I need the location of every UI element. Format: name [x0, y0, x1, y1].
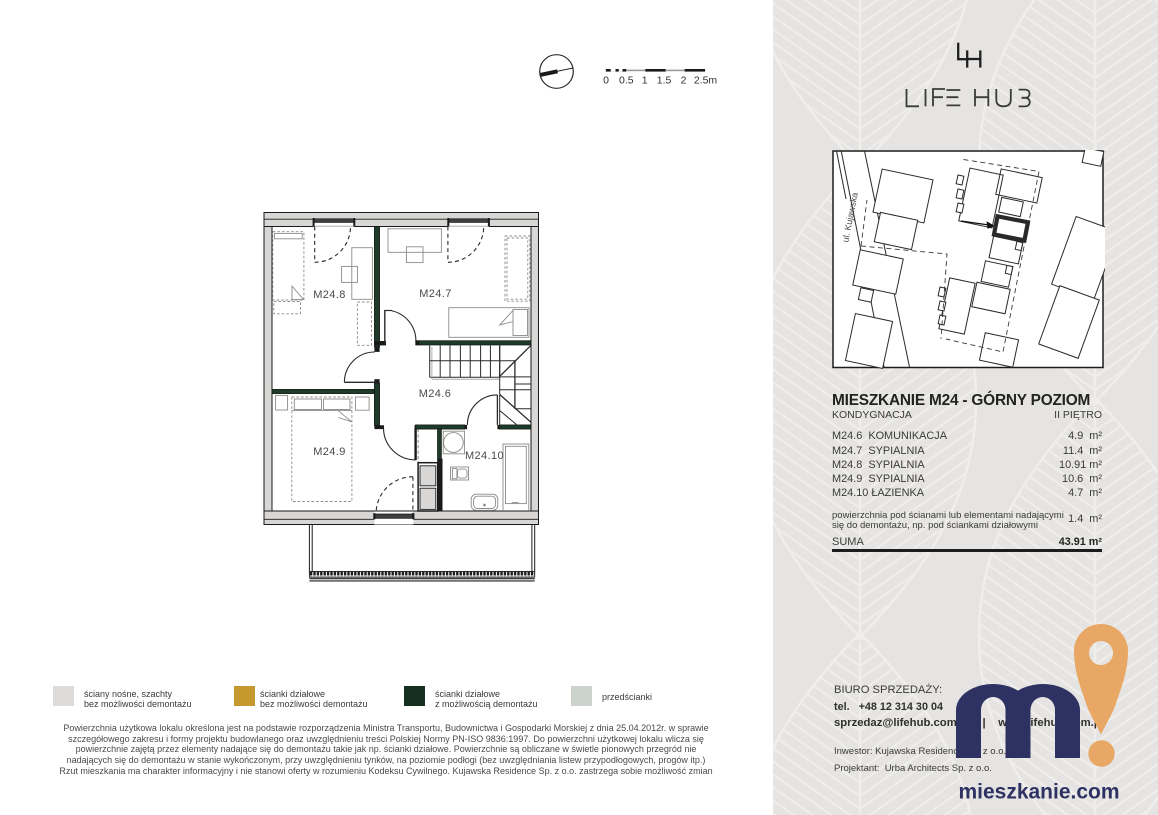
svg-text:M24.10: M24.10 [465, 450, 504, 462]
svg-text:M24.8: M24.8 [313, 289, 346, 301]
svg-text:M24.9: M24.9 [313, 446, 346, 458]
svg-text:M24.6: M24.6 [419, 388, 452, 400]
svg-text:0.5: 0.5 [619, 75, 634, 87]
svg-text:2: 2 [681, 75, 687, 87]
svg-text:M24.7: M24.7 [419, 288, 452, 300]
svg-text:1: 1 [642, 75, 648, 87]
svg-text:1.5: 1.5 [657, 75, 672, 87]
svg-text:0: 0 [603, 75, 609, 87]
svg-text:2.5m: 2.5m [694, 75, 718, 87]
svg-text:mieszkanie.com: mieszkanie.com [958, 781, 1119, 804]
